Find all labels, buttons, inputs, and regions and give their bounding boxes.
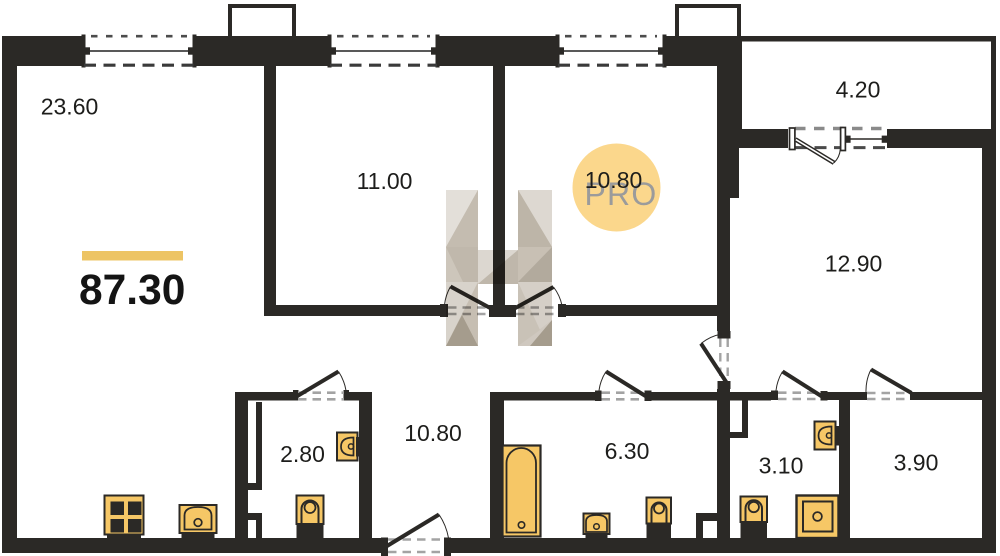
svg-text:3.90: 3.90 xyxy=(894,450,939,476)
svg-text:2.80: 2.80 xyxy=(280,441,325,467)
svg-text:11.00: 11.00 xyxy=(357,168,413,194)
svg-text:10.80: 10.80 xyxy=(585,167,643,193)
svg-text:6.30: 6.30 xyxy=(605,438,650,464)
svg-text:4.20: 4.20 xyxy=(836,77,881,103)
svg-text:12.90: 12.90 xyxy=(825,251,883,277)
svg-text:87.30: 87.30 xyxy=(79,267,185,314)
svg-text:23.60: 23.60 xyxy=(41,94,99,120)
svg-text:10.80: 10.80 xyxy=(404,420,462,446)
svg-text:3.10: 3.10 xyxy=(759,453,804,479)
